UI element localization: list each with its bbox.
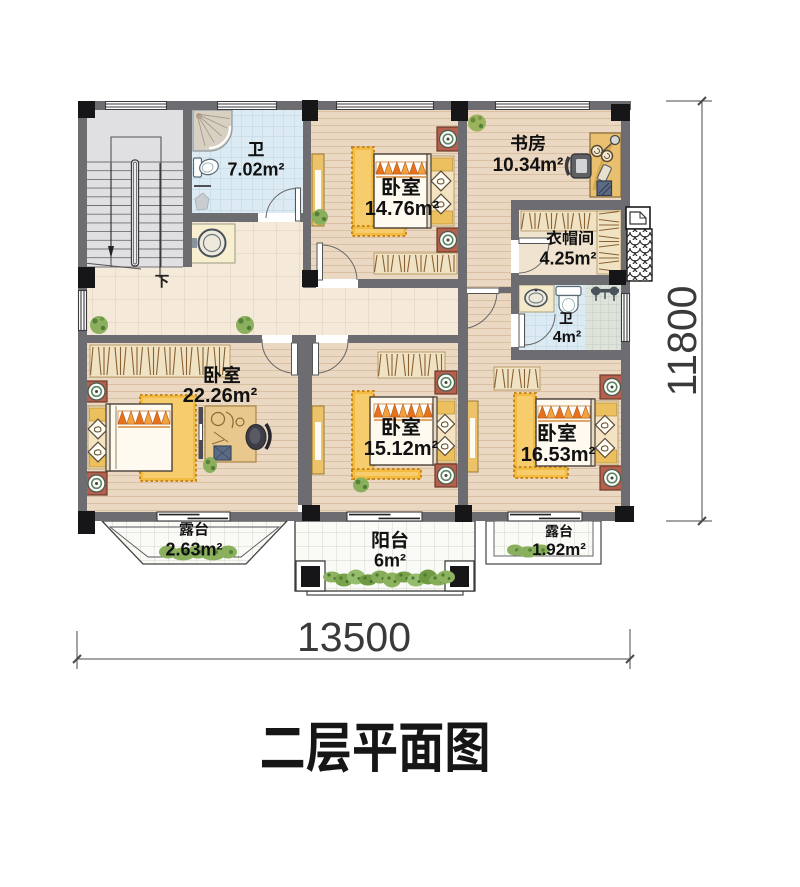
svg-text:10.34m²: 10.34m²	[493, 155, 564, 176]
svg-text:4.25m²: 4.25m²	[539, 249, 596, 269]
svg-text:2.63m²: 2.63m²	[165, 540, 222, 560]
svg-text:4m²: 4m²	[553, 329, 581, 346]
svg-text:13500: 13500	[297, 614, 411, 660]
svg-text:11800: 11800	[659, 286, 705, 397]
svg-text:7.02m²: 7.02m²	[227, 160, 284, 180]
svg-text:6m²: 6m²	[374, 551, 406, 571]
svg-text:22.26m²: 22.26m²	[183, 385, 258, 407]
svg-text:1.92m²: 1.92m²	[532, 540, 586, 559]
svg-text:14.76m²: 14.76m²	[365, 198, 440, 220]
svg-text:15.12m²: 15.12m²	[364, 438, 439, 460]
svg-text:16.53m²: 16.53m²	[521, 444, 596, 466]
